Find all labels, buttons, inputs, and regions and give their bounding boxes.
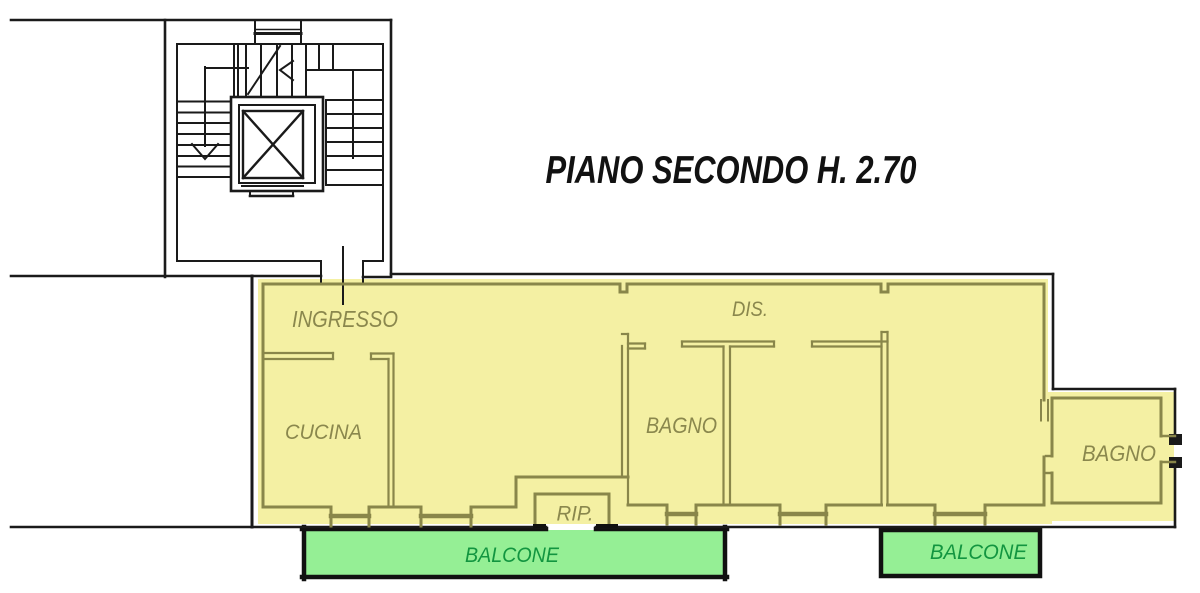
svg-text:PIANO SECONDO H. 2.70: PIANO SECONDO H. 2.70 (546, 149, 917, 192)
svg-text:INGRESSO: INGRESSO (292, 306, 398, 332)
svg-text:BALCONE: BALCONE (930, 540, 1028, 564)
svg-text:DIS.: DIS. (732, 298, 768, 321)
svg-text:RIP.: RIP. (557, 503, 594, 526)
svg-text:BAGNO: BAGNO (1082, 441, 1156, 466)
svg-text:CUCINA: CUCINA (285, 421, 362, 444)
svg-text:BALCONE: BALCONE (465, 543, 560, 567)
svg-text:BAGNO: BAGNO (646, 413, 717, 438)
